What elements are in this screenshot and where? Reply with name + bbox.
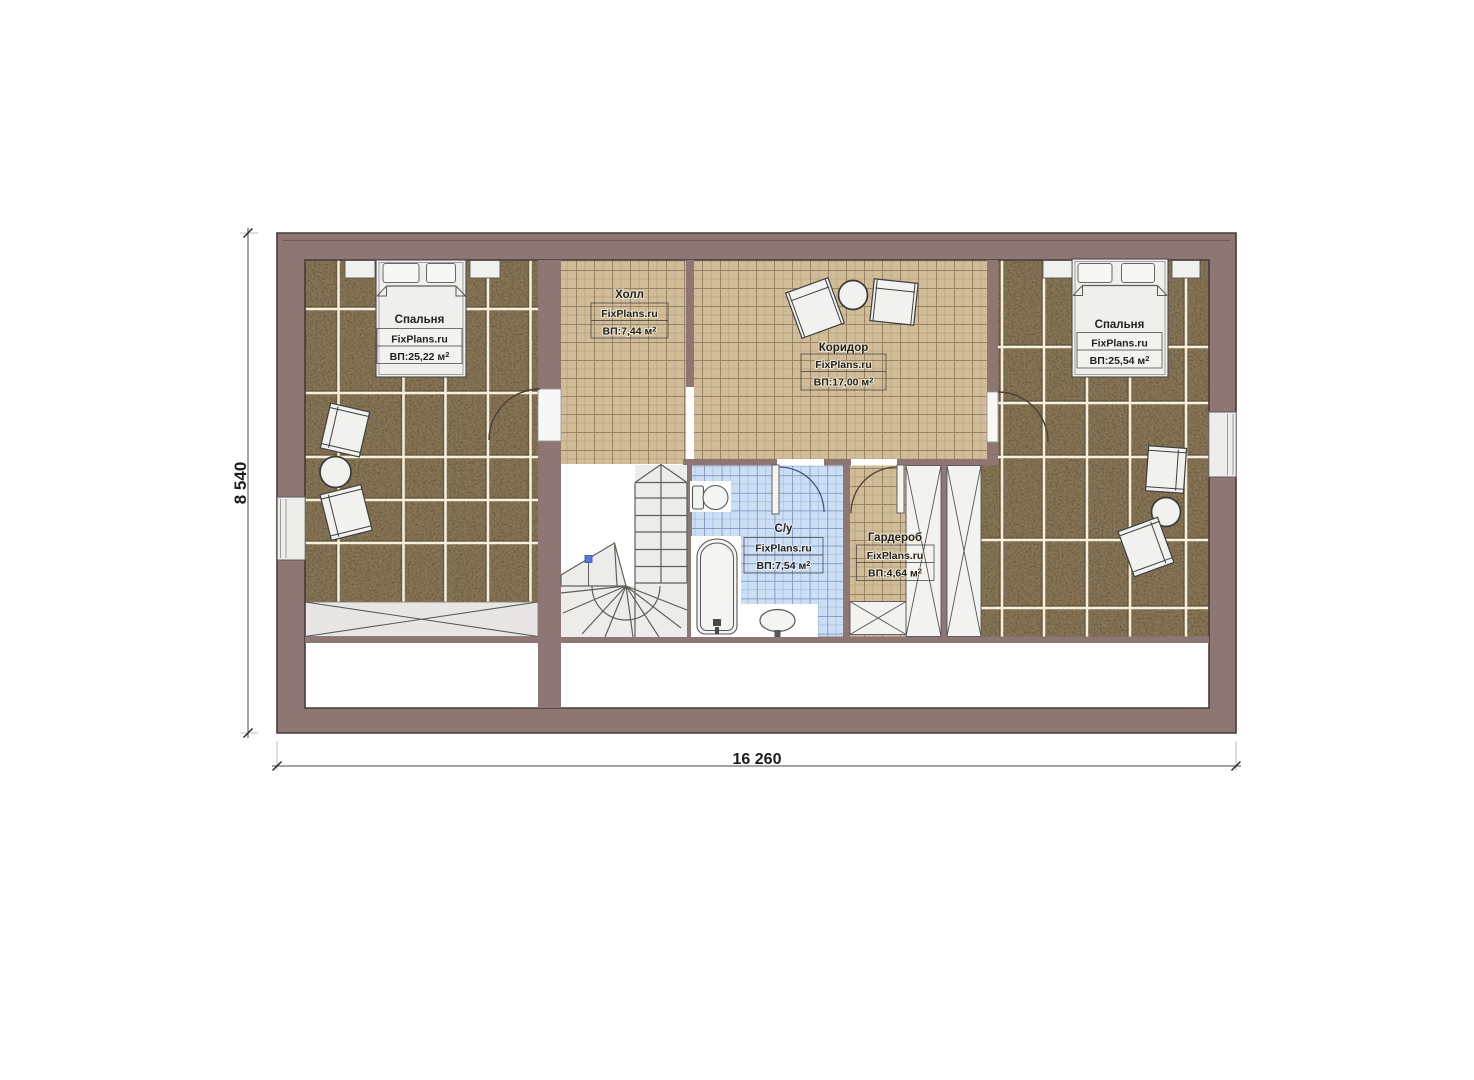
svg-text:Гардероб: Гардероб bbox=[868, 532, 922, 544]
svg-text:Спальня: Спальня bbox=[1095, 319, 1145, 331]
svg-text:FixPlans.ru: FixPlans.ru bbox=[1091, 338, 1148, 350]
svg-text:FixPlans.ru: FixPlans.ru bbox=[867, 550, 924, 562]
svg-text:С/у: С/у bbox=[775, 523, 794, 535]
svg-text:FixPlans.ru: FixPlans.ru bbox=[391, 334, 448, 346]
svg-text:ВП:7,54 м2: ВП:7,54 м2 bbox=[757, 559, 811, 572]
svg-text:ВП:4,64 м2: ВП:4,64 м2 bbox=[868, 567, 922, 580]
svg-text:FixPlans.ru: FixPlans.ru bbox=[601, 308, 658, 320]
svg-text:8 540: 8 540 bbox=[231, 462, 250, 505]
svg-text:FixPlans.ru: FixPlans.ru bbox=[815, 359, 872, 371]
svg-text:Холл: Холл bbox=[615, 289, 644, 301]
svg-text:FixPlans.ru: FixPlans.ru bbox=[755, 543, 812, 555]
svg-text:ВП:17,00 м2: ВП:17,00 м2 bbox=[814, 376, 874, 389]
svg-text:ВП:7,44 м2: ВП:7,44 м2 bbox=[603, 325, 657, 338]
svg-text:16 260: 16 260 bbox=[733, 751, 782, 768]
svg-text:Спальня: Спальня bbox=[395, 314, 445, 326]
svg-text:Коридор: Коридор bbox=[819, 342, 869, 354]
svg-text:ВП:25,22 м2: ВП:25,22 м2 bbox=[390, 350, 450, 363]
svg-text:ВП:25,54 м2: ВП:25,54 м2 bbox=[1090, 354, 1150, 367]
